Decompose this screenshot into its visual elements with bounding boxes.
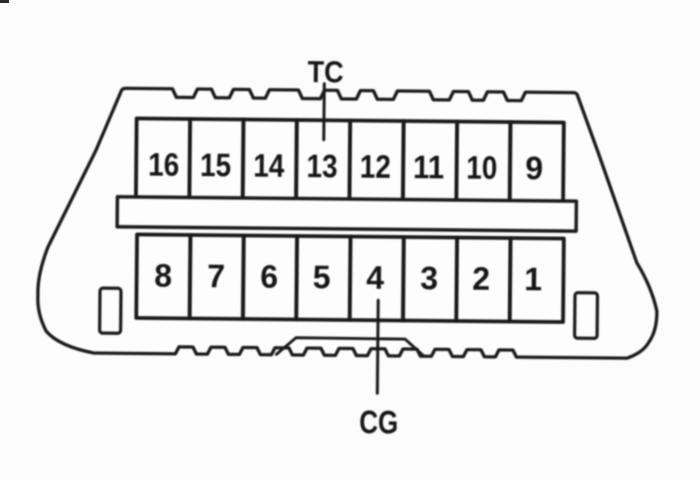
svg-text:1: 1 (524, 261, 542, 297)
svg-text:8: 8 (154, 258, 172, 294)
svg-text:TC: TC (307, 54, 343, 89)
svg-text:3: 3 (420, 260, 438, 296)
svg-text:2: 2 (472, 261, 490, 297)
svg-text:11: 11 (413, 149, 444, 185)
svg-text:6: 6 (260, 259, 278, 295)
svg-text:14: 14 (253, 148, 285, 184)
svg-text:5: 5 (313, 259, 331, 295)
svg-text:15: 15 (200, 147, 231, 183)
svg-text:7: 7 (207, 258, 225, 294)
svg-text:13: 13 (306, 148, 337, 184)
svg-text:CG: CG (359, 404, 398, 440)
svg-text:10: 10 (466, 150, 497, 186)
svg-text:16: 16 (148, 147, 179, 183)
svg-text:9: 9 (525, 150, 543, 186)
svg-text:4: 4 (366, 260, 384, 296)
svg-text:12: 12 (360, 149, 391, 185)
